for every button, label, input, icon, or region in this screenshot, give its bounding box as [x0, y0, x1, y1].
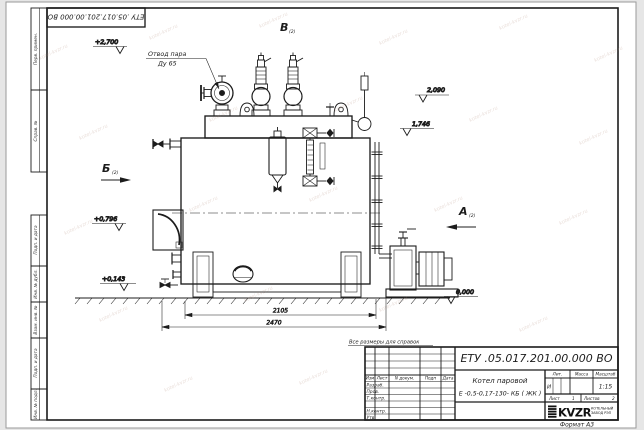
lit-value: И: [547, 385, 551, 391]
dimension-label: 2105: [273, 308, 288, 315]
col-header: Подп: [425, 376, 437, 381]
logo-text: KVZR: [558, 406, 592, 420]
designation: ЕТУ .05.017.201.00.000 ВО: [460, 352, 612, 365]
product-name: Котел паровой: [473, 377, 528, 385]
margin-label: Справ. №: [33, 120, 39, 141]
col-header: Лист: [376, 376, 388, 381]
sheet-number: 1: [572, 396, 575, 401]
elevation-label: 2,090: [427, 87, 445, 94]
view-letter: А: [458, 205, 468, 218]
format-label: Формат А3: [560, 422, 594, 429]
margin-label: Инв. № подл.: [33, 389, 39, 419]
logo-caption: КОТЕЛЬНЫЙ: [591, 406, 614, 411]
row-label: Т.контр.: [367, 396, 386, 402]
row-label: Н.контр.: [367, 409, 387, 415]
col-header: Дата: [442, 376, 454, 381]
margin-label: Подп. и дата: [33, 348, 39, 378]
margin-label: Подп. и дата: [33, 225, 39, 255]
logo-caption: ЗАВОД РЭП: [591, 411, 612, 415]
margin-label: Взам. инв. №: [33, 305, 39, 335]
corner-stamp-text: ЕТУ .05.017.201.00.000 ВО: [47, 13, 144, 21]
view-sheet-ref: (2): [112, 170, 119, 176]
scale-value: 1:15: [599, 384, 613, 391]
product-code: Е -0,5-0,17-130- КБ ( ЖК ): [459, 391, 542, 398]
elevation-label: +0,143: [102, 276, 125, 283]
view-letter: Б: [102, 162, 110, 175]
elevation-label: 0,000: [456, 289, 474, 296]
row-label: Пров.: [367, 389, 380, 395]
elevation-label: 1,746: [412, 121, 430, 128]
drawing-canvas: Перв. примен. Справ. № Подп. и дата Инв.…: [0, 0, 644, 430]
dimension-label: 2470: [266, 320, 281, 327]
elevation-label: +0,796: [94, 216, 117, 223]
margin-label: Перв. примен.: [33, 33, 39, 65]
elevation-label: +2,700: [95, 39, 118, 46]
callout-text: Ду 65: [157, 61, 177, 68]
sheets-total: 2: [612, 396, 615, 401]
massa-header: Масса: [575, 372, 589, 377]
row-label: Утв.: [367, 415, 376, 421]
sheet-label: Лист: [548, 396, 560, 401]
margin-label: Инв. № дубл.: [33, 269, 39, 298]
masshtab-header: Масштаб: [596, 372, 616, 377]
view-sheet-ref: (2): [289, 29, 296, 35]
blueprint-page: Перв. примен. Справ. № Подп. и дата Инв.…: [0, 0, 644, 430]
sheets-label: Листов: [583, 396, 600, 401]
lit-header: Лит.: [552, 372, 563, 377]
callout-text: Отвод пара: [148, 51, 187, 58]
reference-note-text: Все размеры для справок: [349, 340, 420, 346]
view-letter: В: [280, 21, 288, 34]
view-sheet-ref: (2): [469, 213, 476, 219]
col-header: Изм: [366, 376, 375, 381]
col-header: N докум.: [395, 376, 414, 381]
row-label: Разраб.: [367, 383, 384, 389]
